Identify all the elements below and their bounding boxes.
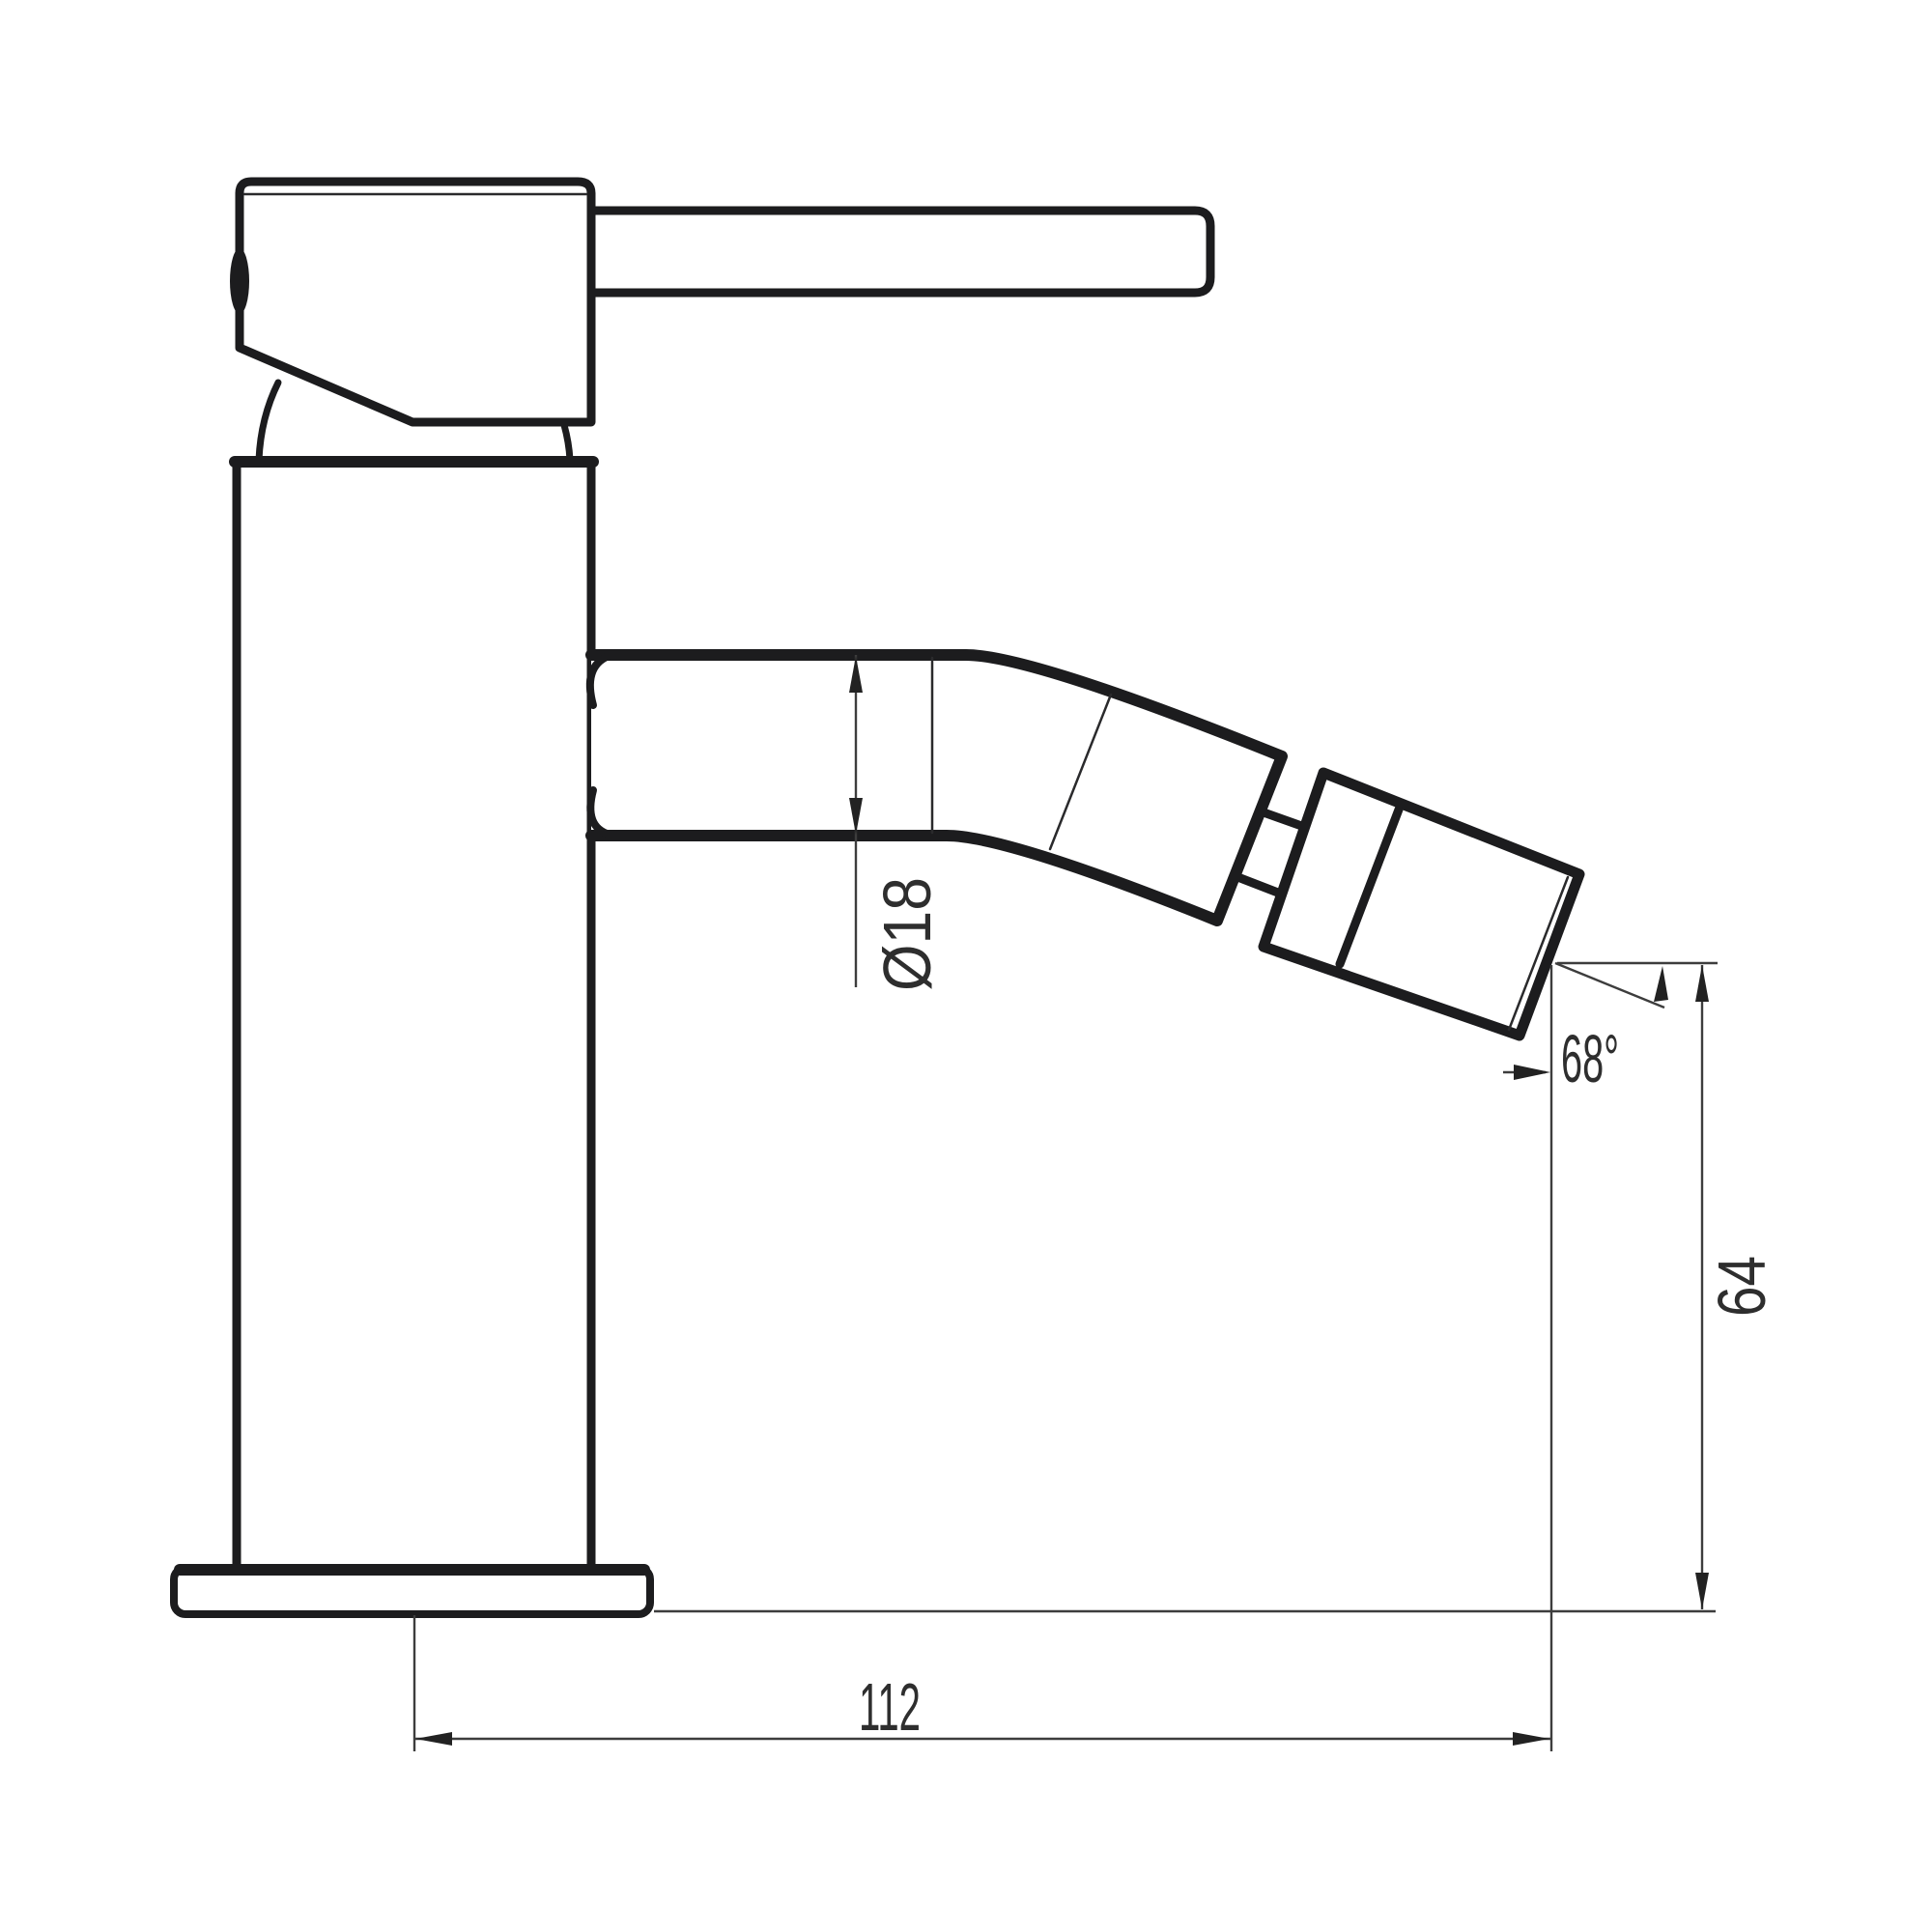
handle-housing: [240, 182, 591, 422]
housing-left-bulge: [230, 248, 249, 314]
neck-right-curve: [564, 425, 570, 460]
faucet-dimension-drawing: Ø18 68° 64 112: [0, 0, 1932, 1932]
dim112-dimension-text: 112: [859, 1669, 921, 1745]
neck-left-curve: [259, 383, 278, 460]
aerator-head: [1264, 773, 1579, 1036]
spray-axis-extension-line: [1555, 963, 1664, 1008]
dim112-arrow-left: [415, 1732, 452, 1746]
faucet-body-column: [237, 462, 591, 1571]
aerator-neck-bottom-line: [1240, 878, 1283, 895]
technical-drawing-faucet-side-view: Ø18 68° 64 112: [0, 0, 1932, 1932]
dim112-arrow-right: [1513, 1732, 1549, 1746]
lever-handle-bar: [591, 211, 1210, 293]
dim64-arrow-up: [1695, 965, 1709, 1002]
angle-arrow-up: [1654, 966, 1668, 1002]
dim64-arrow-down: [1695, 1573, 1709, 1609]
angle-68-text: 68°: [1561, 1021, 1619, 1096]
dim64-dimension-text: 64: [1704, 1256, 1779, 1317]
dia18-dimension-text: Ø18: [869, 877, 945, 991]
angle-arrow-right: [1514, 1065, 1550, 1080]
